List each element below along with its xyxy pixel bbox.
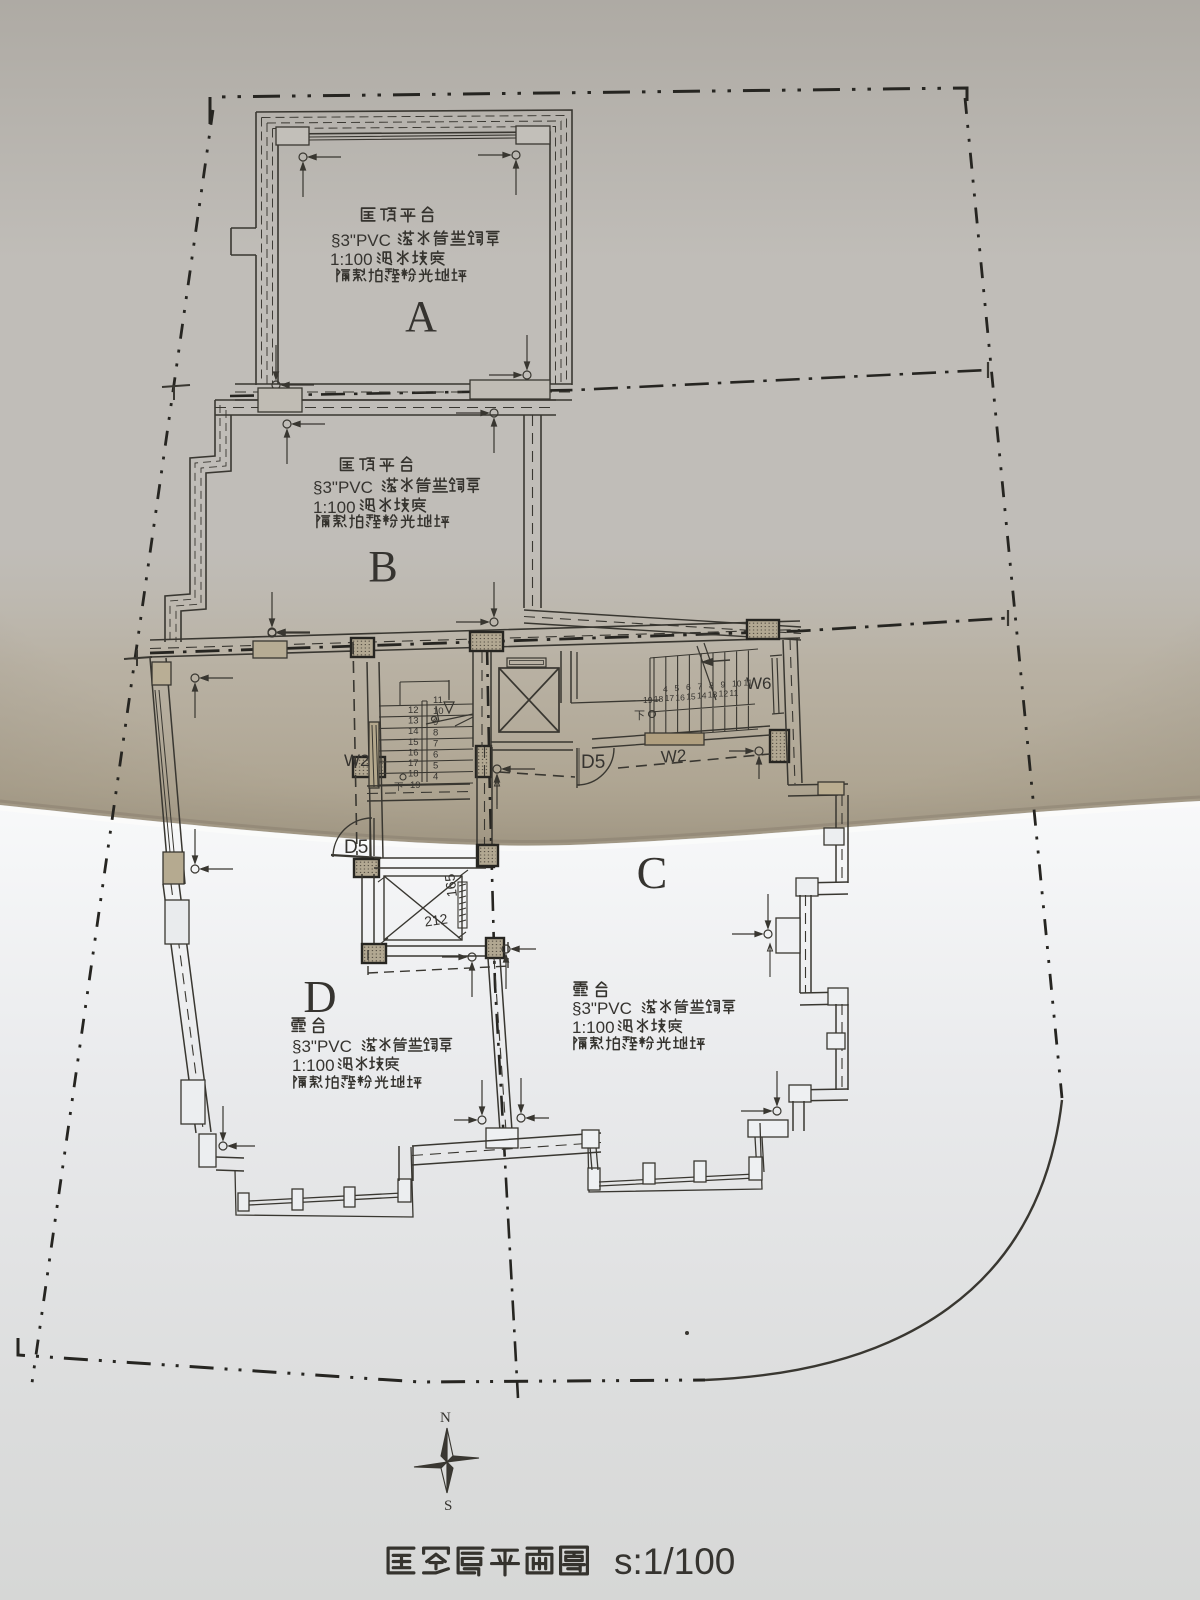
svg-text:4: 4 bbox=[433, 771, 438, 782]
svg-text:1:100: 1:100 bbox=[572, 1018, 615, 1037]
svg-text:下: 下 bbox=[394, 782, 404, 793]
svg-text:19: 19 bbox=[643, 695, 653, 705]
svg-text:212: 212 bbox=[423, 910, 449, 929]
svg-text:§3"PVC: §3"PVC bbox=[313, 478, 373, 497]
svg-text:W2: W2 bbox=[344, 751, 370, 770]
svg-text:16: 16 bbox=[675, 692, 685, 702]
svg-text:A: A bbox=[405, 292, 437, 341]
svg-text:14: 14 bbox=[408, 726, 419, 737]
svg-text:18: 18 bbox=[654, 694, 664, 704]
svg-text:N: N bbox=[440, 1410, 451, 1426]
svg-text:14: 14 bbox=[697, 691, 707, 701]
svg-text:16: 16 bbox=[408, 747, 419, 758]
svg-text:W2: W2 bbox=[660, 746, 687, 767]
svg-text:S: S bbox=[444, 1498, 452, 1514]
svg-text:13: 13 bbox=[408, 716, 419, 727]
svg-text:1:100: 1:100 bbox=[313, 498, 356, 517]
svg-text:C: C bbox=[637, 847, 668, 898]
svg-text:§3"PVC: §3"PVC bbox=[331, 231, 391, 250]
svg-text:D5: D5 bbox=[344, 837, 368, 858]
svg-text:15: 15 bbox=[408, 737, 419, 748]
svg-text:7: 7 bbox=[433, 739, 438, 750]
svg-text:1:100: 1:100 bbox=[330, 250, 373, 269]
svg-text:12: 12 bbox=[719, 689, 729, 699]
svg-text:5: 5 bbox=[433, 760, 438, 771]
svg-text:W6: W6 bbox=[746, 674, 772, 693]
svg-text:D5: D5 bbox=[581, 752, 605, 773]
svg-text:17: 17 bbox=[408, 758, 419, 769]
svg-text:12: 12 bbox=[408, 705, 419, 716]
svg-text:§3"PVC: §3"PVC bbox=[572, 999, 632, 1018]
svg-text:6: 6 bbox=[433, 750, 438, 761]
svg-text:下: 下 bbox=[634, 710, 645, 722]
svg-text:18: 18 bbox=[408, 769, 419, 780]
svg-text:17: 17 bbox=[665, 693, 675, 703]
svg-text:11: 11 bbox=[729, 688, 738, 698]
svg-text:s:1/100: s:1/100 bbox=[614, 1541, 735, 1582]
svg-text:8: 8 bbox=[433, 728, 438, 739]
svg-text:1:100: 1:100 bbox=[292, 1056, 335, 1075]
svg-text:165: 165 bbox=[441, 873, 460, 898]
svg-text:11: 11 bbox=[433, 695, 443, 706]
svg-text:D: D bbox=[303, 971, 336, 1022]
svg-text:§3"PVC: §3"PVC bbox=[292, 1037, 352, 1056]
svg-text:15: 15 bbox=[686, 691, 696, 701]
svg-text:B: B bbox=[368, 542, 397, 591]
